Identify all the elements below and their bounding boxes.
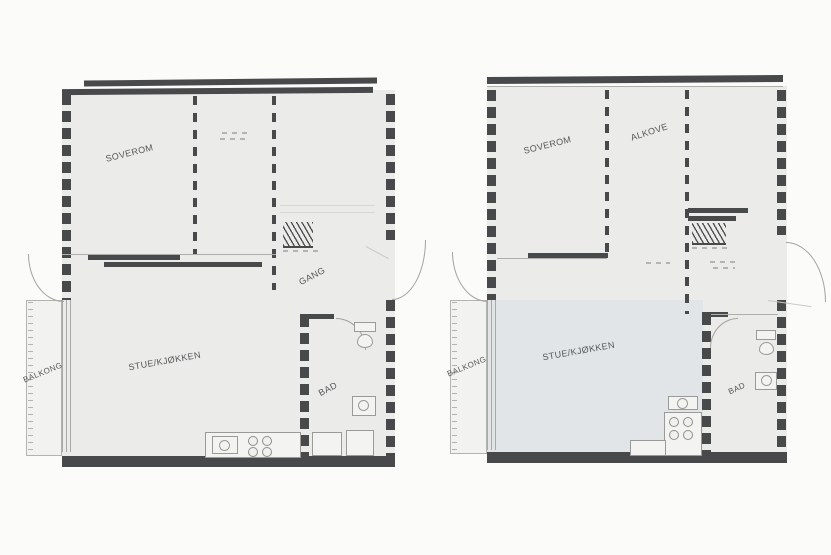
toilet-tank-icon-right [756,330,776,340]
floorplan-image: SOVEROM GANG STUE/KJØKKEN BAD BALKONG [0,0,831,555]
stove-burner-icon [262,447,272,457]
stair-guide-line-2-left [280,212,375,213]
door-arc-entrance-right [786,242,826,302]
faint-marks-3-right [646,262,670,264]
door-arc-balcony-left [28,254,64,302]
stove-burner-icon [248,447,258,457]
door-arc-entrance-left [392,240,426,300]
sink-basin-icon-bath-left [358,400,369,411]
wall-top-right-plan [487,75,783,84]
wall-right-lower-left-plan [386,300,395,456]
window-balcony-right-plan [487,300,496,450]
sink-basin-icon-bath-right [761,375,772,386]
floor-area-left [62,90,395,460]
wall-top-line-right-plan [487,86,783,87]
faint-marks-stairs-right [692,247,728,249]
stove-burner-icon [683,430,693,440]
stair-guide-line-1-left [280,205,375,206]
stairs-hatch-left [283,222,313,248]
wall-right-upper-left-plan [386,94,395,240]
wall-left-right-plan [487,90,496,300]
sliding-door-leaf-2-left [104,262,262,267]
faint-marks-closet-2-left [220,138,248,140]
faint-marks-2-right [713,267,735,269]
kitchen-sink-basin-icon-right [677,398,688,409]
bathroom-boundary-right [711,314,778,315]
sliding-door-leaf-1-left [88,255,180,260]
stair-bar-2-right [688,216,736,221]
stair-bar-1-right [688,208,748,213]
washer-icon-left [312,432,342,456]
wall-bathroom-right-plan [702,314,711,452]
door-arc-balcony-right [452,252,488,302]
toilet-bowl-icon-right [759,342,774,355]
stove-burner-icon [683,417,693,427]
toilet-tank-icon-left [354,322,376,332]
wall-line-under-soverom-right [497,258,607,259]
stove-burner-icon [262,436,272,446]
toilet-bowl-icon-left [357,334,373,348]
wall-right-lower-right-plan [777,300,786,456]
partition-gang-left-plan [272,96,276,290]
wall-bathroom-left-plan [300,316,309,456]
stove-burner-icon [248,436,258,446]
kitchen-appliance-icon-right [630,440,666,456]
shower-icon-left [346,430,374,456]
stove-burner-icon [669,430,679,440]
partition-soverom-right-plan [605,90,609,256]
faint-marks-stairs-left [283,250,323,252]
faint-marks-1-right [710,261,736,263]
stairs-hatch-right [692,223,726,245]
window-balcony-left-plan [62,300,71,452]
partition-alkove-right-plan [685,90,689,314]
stove-burner-icon [669,417,679,427]
wall-bathroom-top-left-plan [300,314,334,319]
wall-right-upper-right-plan [777,90,786,235]
partition-soverom-left-plan [193,96,197,254]
kitchen-sink-basin-icon-left [219,440,230,451]
faint-marks-closet-1-left [222,132,248,134]
wall-top-outer-left-plan [84,77,377,86]
